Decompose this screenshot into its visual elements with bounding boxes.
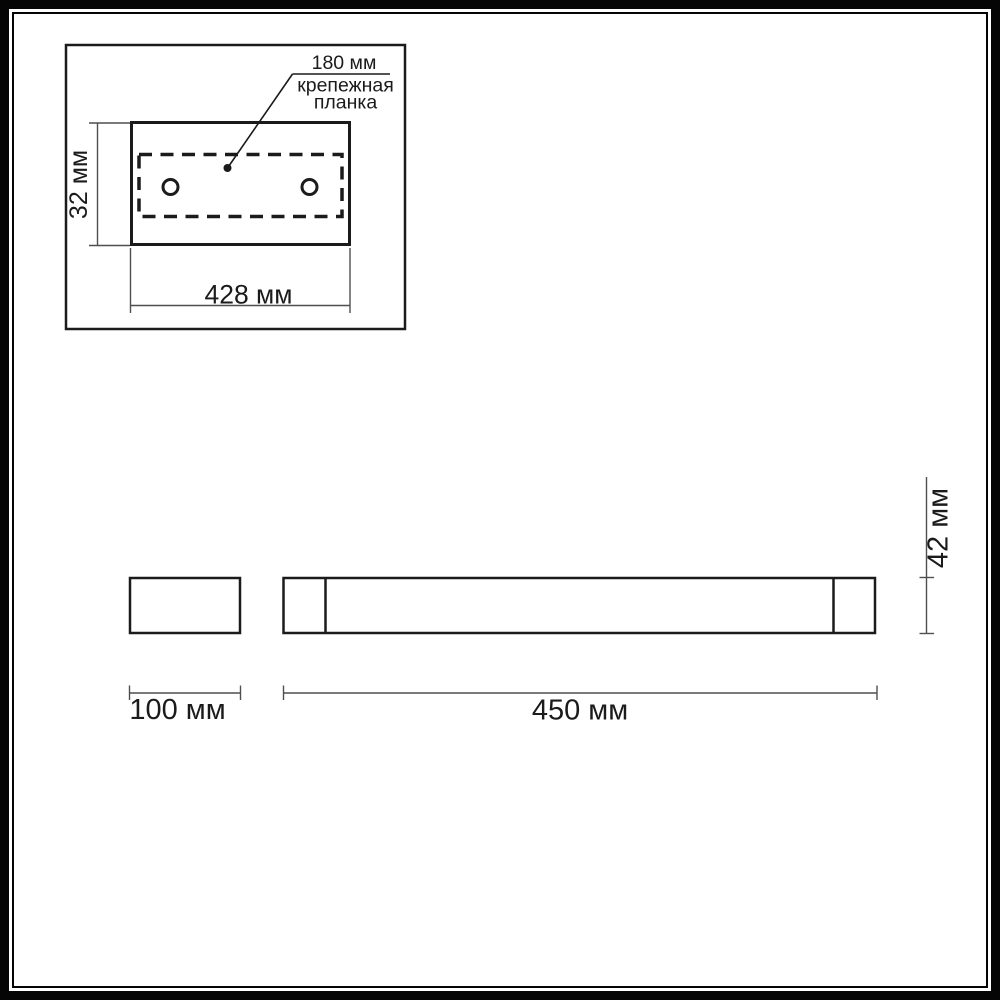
front-height-label: 42 мм xyxy=(923,488,955,568)
shape-layer xyxy=(66,45,875,633)
dimension-drawing: 180 мм крепежная планка 32 мм 428 мм 100… xyxy=(0,0,1000,1000)
side-depth-label: 100 мм xyxy=(129,694,225,726)
part-name-line2: планка xyxy=(314,92,378,114)
side-view-rect xyxy=(130,578,240,633)
dimension-drawing-page: 180 мм крепежная планка 32 мм 428 мм 100… xyxy=(0,0,1000,1000)
label-layer: 180 мм крепежная планка 32 мм 428 мм 100… xyxy=(65,52,955,727)
front-view-rect xyxy=(284,578,876,633)
hole-spacing-label: 180 мм xyxy=(312,52,377,74)
mounting-bracket-dashed-rect xyxy=(139,155,342,217)
mounting-hole-left xyxy=(163,180,178,195)
plate-width-label: 428 мм xyxy=(204,280,292,310)
leader-dot xyxy=(224,164,232,172)
mounting-hole-right xyxy=(302,180,317,195)
front-width-label: 450 мм xyxy=(532,695,628,727)
plate-height-label: 32 мм xyxy=(65,150,93,219)
dimension-line-layer xyxy=(89,123,934,700)
